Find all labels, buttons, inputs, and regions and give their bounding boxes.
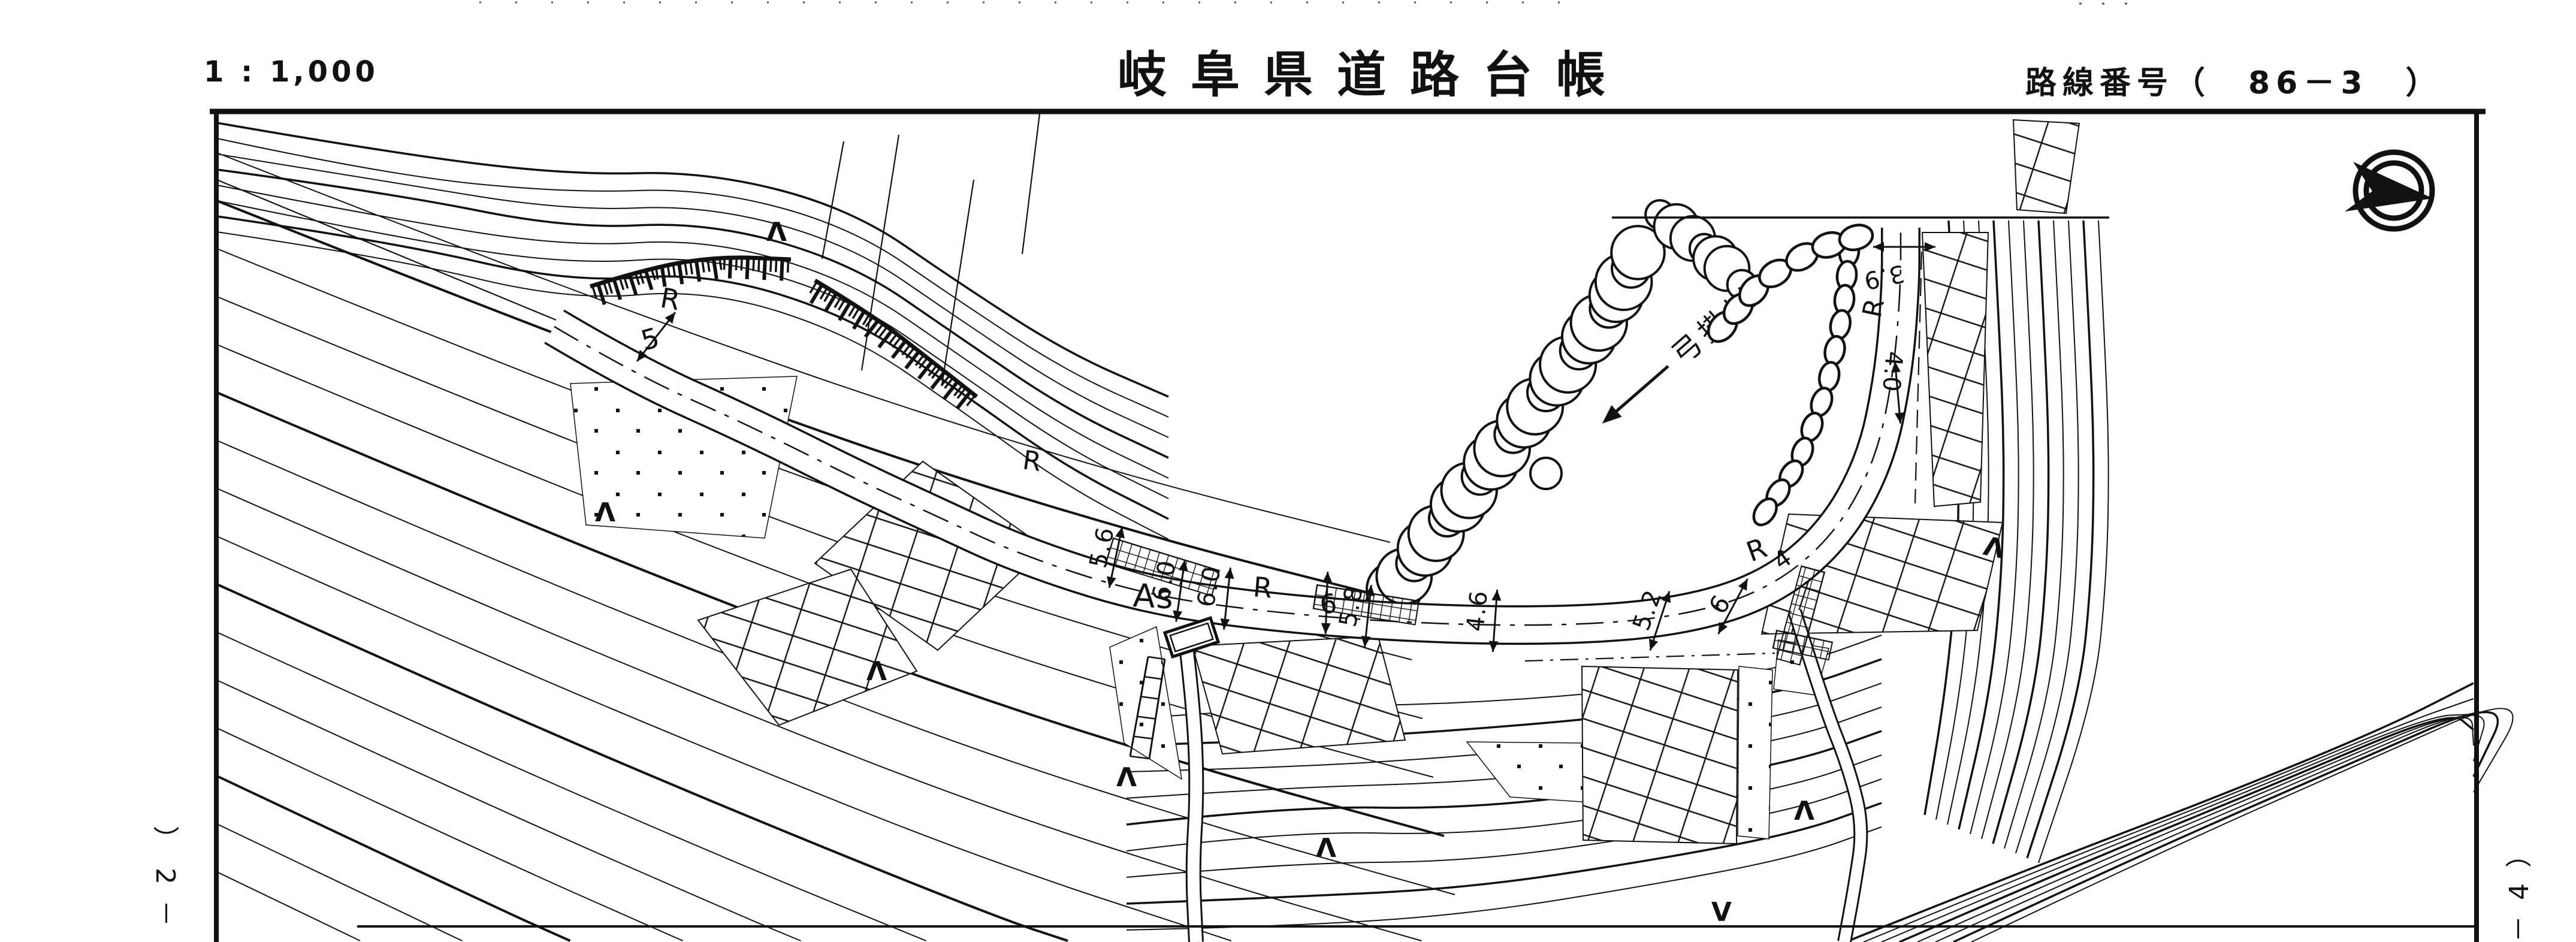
conifer-symbol: Λ: [766, 217, 787, 247]
contour-lines: [217, 123, 2513, 942]
river-flow-arrow: [1614, 366, 1668, 413]
conifer-symbol: Λ: [866, 656, 887, 687]
conifer-symbol: Λ: [595, 497, 615, 528]
road-ledger-sheet: { "page": {"background": "#ffffff", "ink…: [0, 0, 2576, 942]
road-annotation: 4.0: [1877, 350, 1908, 394]
map-frame: [210, 109, 2486, 942]
north-arrow-icon: [2345, 152, 2433, 229]
road-annotation: R: [1020, 445, 1044, 478]
road-annotation: R: [1742, 531, 1772, 568]
riverbank-tree-clouds: [1367, 200, 1757, 620]
scan-artifact-marks: [479, 2, 2133, 4]
conifer-symbol: Λ: [1794, 796, 1814, 826]
road-annotation: R: [1252, 570, 1275, 605]
conifer-symbol: Λ: [1116, 762, 1137, 793]
map-canvas: 弓掛川 5RR5.6As6.06.0R65.84.65.26R4R4.03.9 …: [0, 0, 2576, 942]
road-annotation: R: [658, 282, 684, 317]
conifer-symbol: Λ: [1316, 833, 1336, 864]
road-annotation: 4.6: [1461, 588, 1493, 633]
conifer-symbol: Λ: [1711, 895, 1732, 926]
